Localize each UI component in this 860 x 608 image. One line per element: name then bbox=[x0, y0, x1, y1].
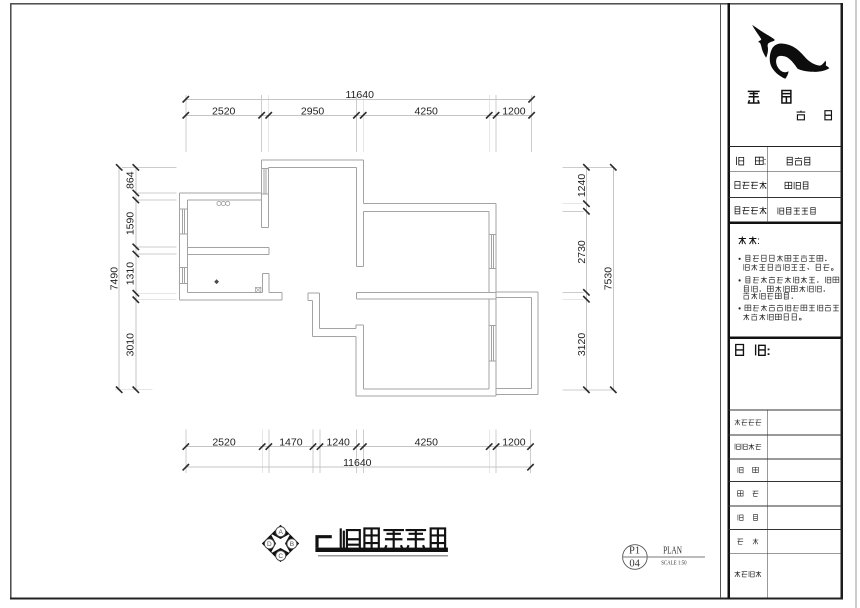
svg-text:PLAN: PLAN bbox=[663, 545, 682, 556]
svg-text:B: B bbox=[290, 541, 294, 548]
svg-text:3010: 3010 bbox=[124, 333, 136, 357]
svg-text:C: C bbox=[278, 553, 283, 560]
svg-text:1470: 1470 bbox=[279, 436, 303, 448]
svg-text:7530: 7530 bbox=[602, 267, 614, 291]
svg-text:2730: 2730 bbox=[576, 240, 588, 264]
svg-text::: : bbox=[757, 236, 760, 247]
svg-text:7490: 7490 bbox=[108, 267, 120, 291]
svg-text:P1: P1 bbox=[629, 546, 640, 557]
svg-text:2520: 2520 bbox=[212, 105, 236, 117]
svg-text:04: 04 bbox=[629, 558, 640, 569]
svg-text:A: A bbox=[279, 529, 284, 536]
svg-text:4250: 4250 bbox=[415, 105, 439, 117]
svg-text:1240: 1240 bbox=[576, 174, 588, 198]
svg-text:2520: 2520 bbox=[212, 436, 236, 448]
svg-text:SCALE 1:50: SCALE 1:50 bbox=[661, 560, 686, 567]
svg-text:2950: 2950 bbox=[301, 105, 325, 117]
svg-text:1200: 1200 bbox=[502, 436, 526, 448]
svg-text:4250: 4250 bbox=[415, 436, 439, 448]
svg-text:1310: 1310 bbox=[124, 262, 136, 286]
svg-text::: : bbox=[764, 157, 767, 168]
svg-text:864: 864 bbox=[124, 171, 136, 189]
svg-text:1200: 1200 bbox=[502, 105, 526, 117]
svg-text::: : bbox=[764, 180, 767, 191]
svg-text:1240: 1240 bbox=[327, 436, 351, 448]
svg-text:3120: 3120 bbox=[576, 333, 588, 357]
svg-text::: : bbox=[764, 206, 767, 217]
svg-text::: : bbox=[766, 343, 770, 358]
svg-text:D: D bbox=[267, 541, 272, 548]
svg-text:1590: 1590 bbox=[124, 212, 136, 236]
svg-text:11640: 11640 bbox=[343, 457, 372, 469]
svg-text:11640: 11640 bbox=[345, 89, 374, 101]
